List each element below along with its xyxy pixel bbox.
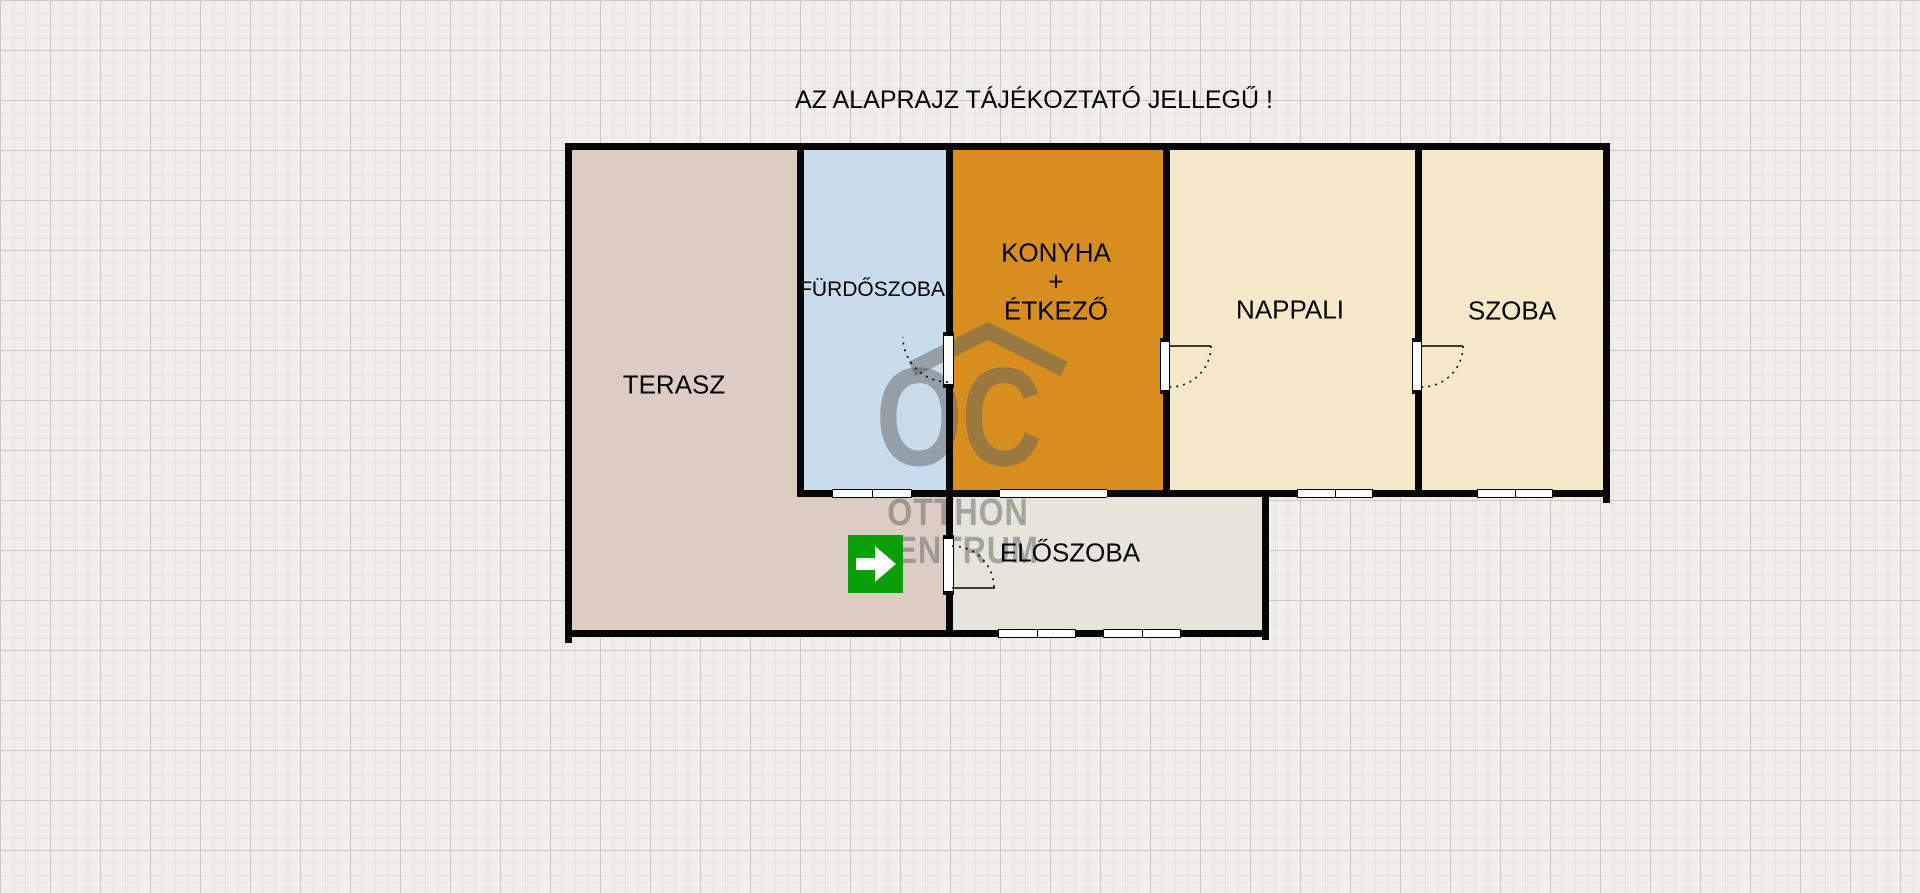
- room-label-nappali: NAPPALI: [1236, 295, 1344, 326]
- wall-top: [565, 143, 1610, 150]
- disclaimer-title: AZ ALAPRAJZ TÁJÉKOZTATÓ JELLEGŰ !: [795, 86, 1273, 115]
- room-label-konyha-line2: +: [1001, 268, 1111, 297]
- window-divider: [1037, 629, 1038, 638]
- window-eloszoba-2: [1103, 629, 1181, 638]
- room-label-eloszoba: ELŐSZOBA: [1000, 538, 1140, 569]
- opening-konyha-eloszoba: [1000, 489, 1107, 498]
- door-eloszoba-entry: [943, 535, 954, 595]
- door-szoba: [1412, 338, 1422, 394]
- window-divider: [872, 489, 873, 498]
- door-furdoszoba: [943, 332, 954, 388]
- door-nappali: [1160, 338, 1170, 394]
- watermark-otthon-text: OTTHON: [887, 494, 1028, 532]
- room-label-konyha-line1: KONYHA: [1001, 239, 1111, 268]
- window-furdoszoba: [832, 489, 912, 498]
- wall-right: [1603, 143, 1610, 503]
- window-divider: [1142, 629, 1143, 638]
- wall-nappali-szoba: [1415, 143, 1422, 497]
- window-divider: [1335, 489, 1336, 498]
- wall-terasz-furdoszoba: [797, 143, 804, 497]
- window-eloszoba-1: [998, 629, 1076, 638]
- wall-furdoszoba-konyha: [946, 143, 953, 497]
- wall-konyha-nappali: [1163, 143, 1170, 497]
- window-nappali: [1297, 489, 1373, 498]
- wall-left: [565, 143, 572, 643]
- room-label-terasz: TERASZ: [623, 370, 726, 401]
- room-label-furdoszoba: FÜRDŐSZOBA: [799, 278, 945, 302]
- floorplan-canvas: AZ ALAPRAJZ TÁJÉKOZTATÓ JELLEGŰ ! OC OTT…: [0, 0, 1920, 893]
- room-label-szoba: SZOBA: [1468, 296, 1556, 327]
- room-label-konyha-etkezo: KONYHA + ÉTKEZŐ: [1001, 239, 1111, 326]
- watermark-logo-text: OC: [876, 350, 1041, 483]
- room-label-konyha-line3: ÉTKEZŐ: [1001, 297, 1111, 326]
- wall-eloszoba-right: [1262, 490, 1269, 640]
- window-szoba: [1477, 489, 1553, 498]
- entrance-arrow-icon: [848, 535, 903, 593]
- window-divider: [1515, 489, 1516, 498]
